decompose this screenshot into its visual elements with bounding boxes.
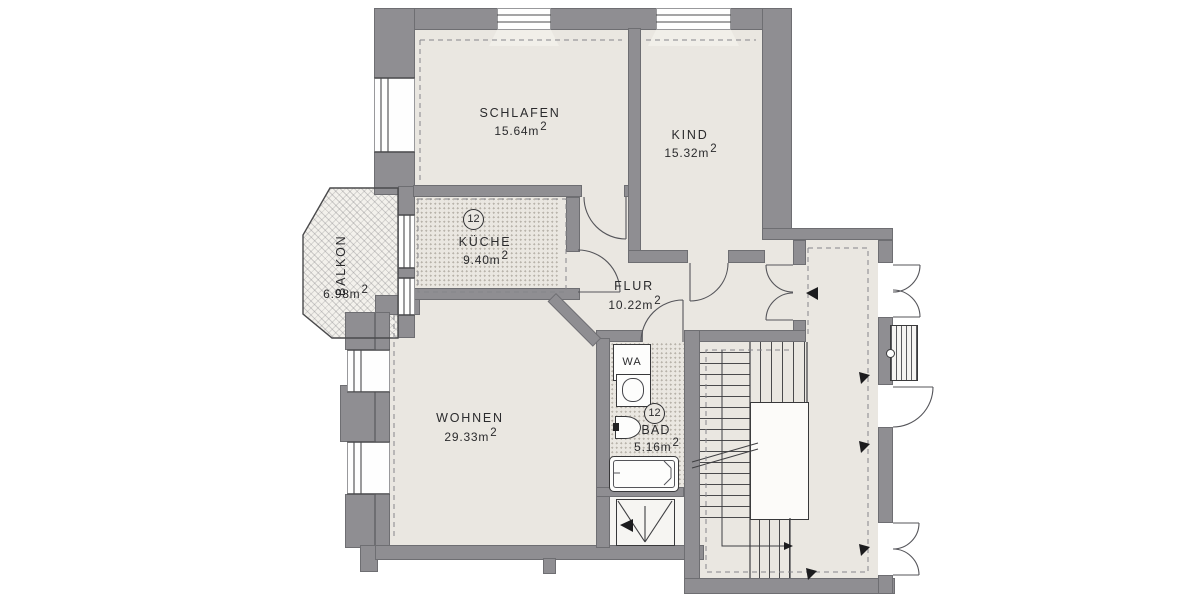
arrow-elevator [620,519,633,532]
arrow-stair-exit [784,542,793,550]
room-label-bad: BAD [634,423,678,437]
door-schlafen [584,197,626,239]
room-area-kueche: 9.40m2 [430,253,540,267]
door-kind [690,263,728,301]
stairwell-dashed-boundary [706,248,868,572]
door-swings [578,197,933,575]
floor-plan: WA [0,0,1200,600]
stair-lines [692,342,807,578]
stair-break-line [692,443,758,468]
room-area-bad: 5.16m2 [626,440,686,454]
bathtub-detail [613,461,671,485]
room-area-kind: 15.32m2 [640,146,740,160]
room-label-kueche: KÜCHE [430,235,540,249]
door-neighbor-bottom [893,523,919,575]
balcony-outline [303,188,398,338]
room-label-kind: KIND [640,128,740,142]
room-label-schlafen: SCHLAFEN [460,106,580,120]
door-neighbor-mid [893,387,933,427]
room-area-wohnen: 29.33m2 [423,430,517,444]
door-entrance [766,265,793,320]
room-label-flur: FLUR [600,279,668,293]
room-area-flur: 10.22m2 [600,298,668,312]
stair-walk-line [722,350,784,546]
door-neighbor-top [893,265,920,317]
room-label-balkon: BALKON [334,224,348,296]
unit-badge-bad: 12 [644,403,665,424]
elevator-symbol [618,501,672,542]
room-label-wohnen: WOHNEN [423,411,517,425]
room-area-balkon: 6.98m2 [318,287,372,301]
room-area-schlafen: 15.64m2 [460,124,580,138]
unit-badge-kueche: 12 [463,209,484,230]
